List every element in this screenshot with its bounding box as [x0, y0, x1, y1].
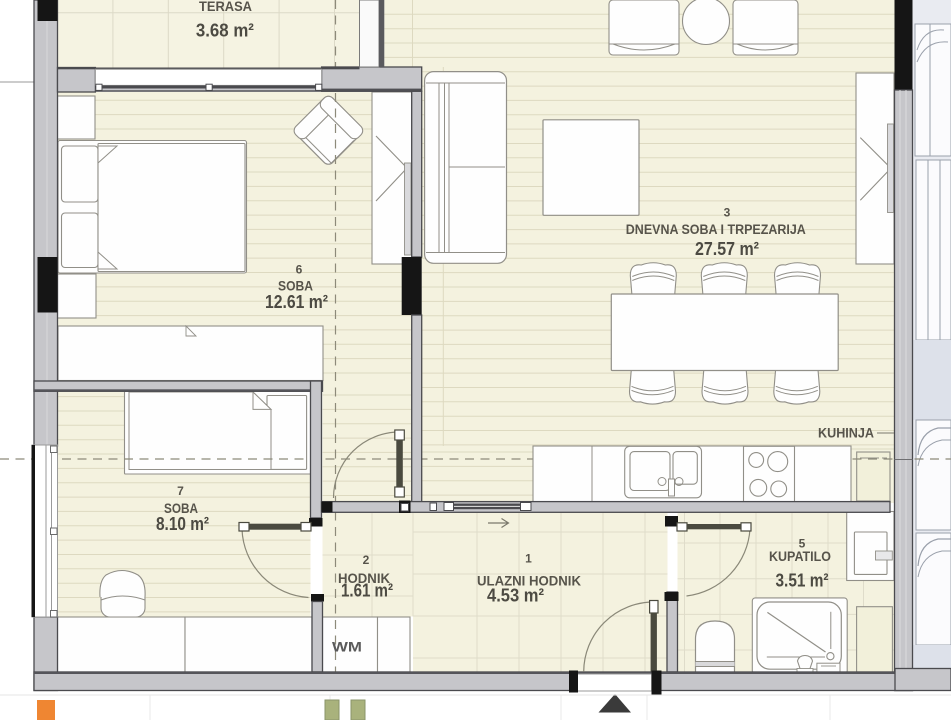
svg-text:27.57 m²: 27.57 m² — [695, 238, 759, 259]
svg-text:3.68 m²: 3.68 m² — [196, 20, 254, 41]
svg-text:3: 3 — [724, 206, 731, 220]
svg-text:1.61 m²: 1.61 m² — [341, 580, 393, 601]
svg-text:KUPATILO: KUPATILO — [769, 549, 831, 564]
svg-text:DNEVNA SOBA I TRPEZARIJA: DNEVNA SOBA I TRPEZARIJA — [626, 222, 806, 237]
svg-text:7: 7 — [177, 484, 184, 498]
svg-text:6: 6 — [296, 263, 303, 277]
svg-text:3.51 m²: 3.51 m² — [776, 570, 829, 591]
svg-text:WM: WM — [332, 639, 362, 655]
svg-text:4.53 m²: 4.53 m² — [487, 585, 544, 606]
svg-text:8.10 m²: 8.10 m² — [156, 513, 209, 534]
svg-text:2: 2 — [363, 553, 370, 567]
svg-text:TERASA: TERASA — [199, 0, 252, 14]
svg-text:1: 1 — [525, 552, 532, 566]
svg-text:12.61 m²: 12.61 m² — [265, 291, 328, 312]
svg-text:KUHINJA: KUHINJA — [818, 426, 874, 441]
